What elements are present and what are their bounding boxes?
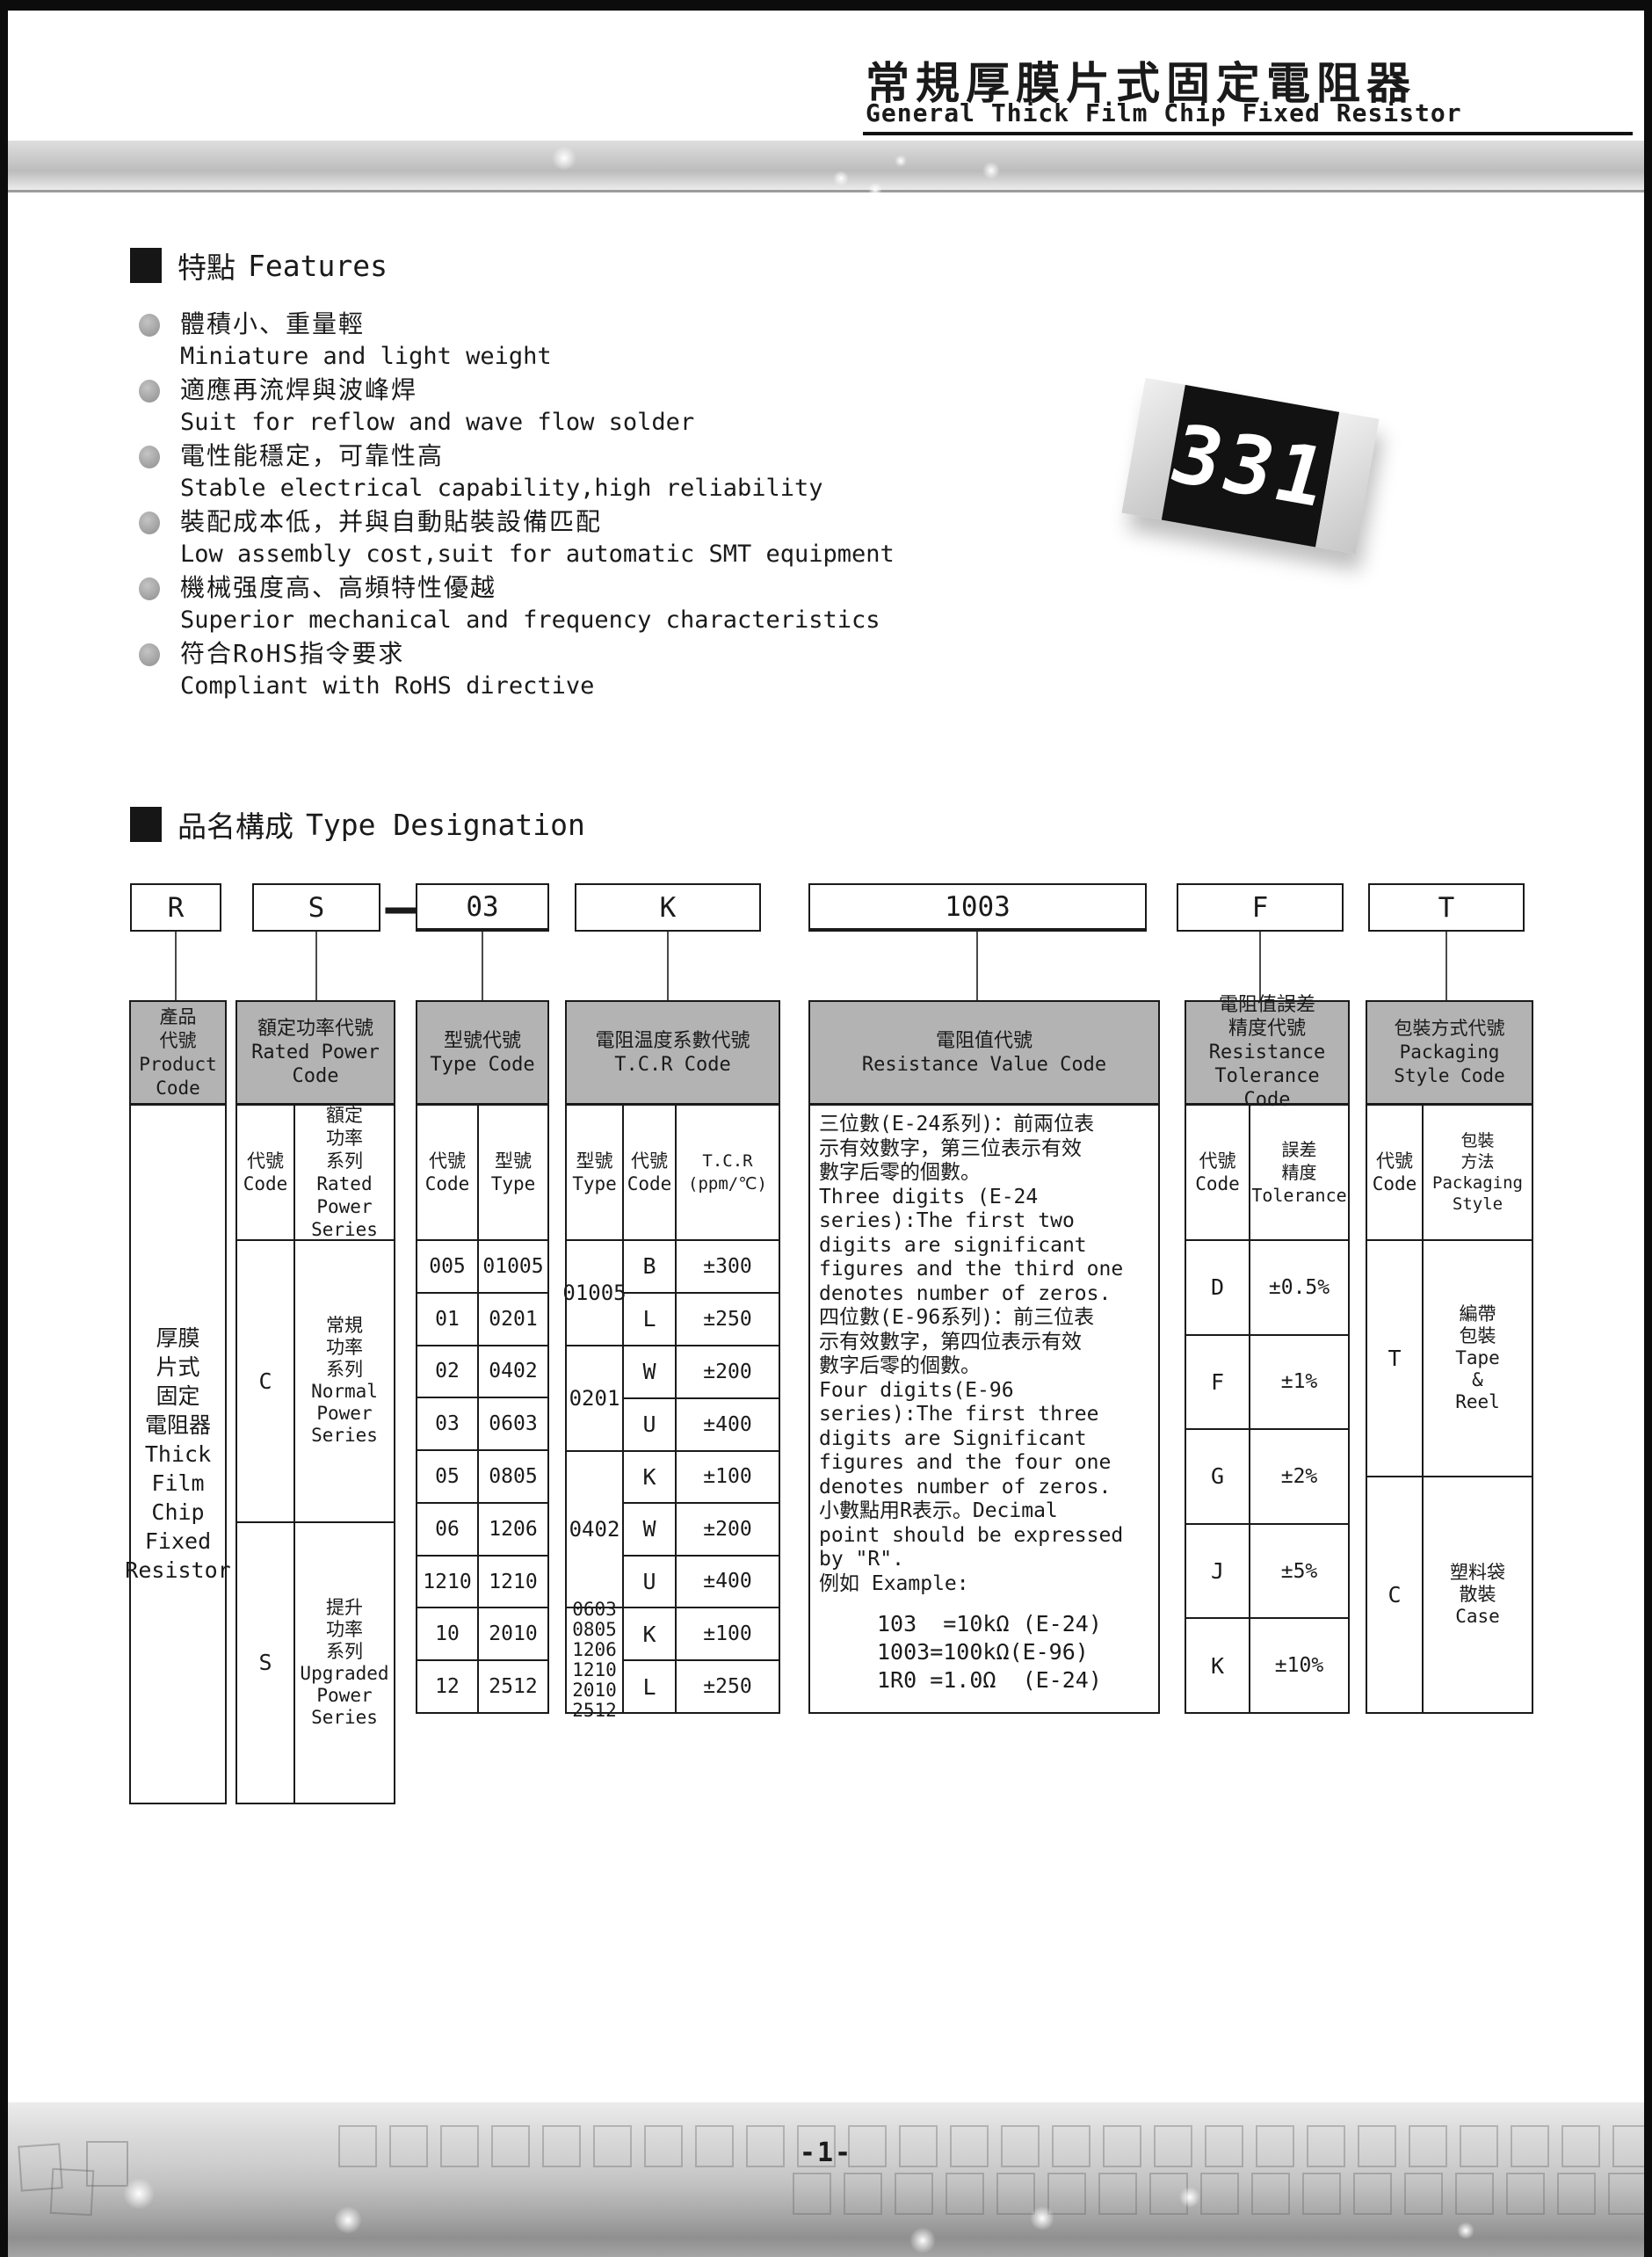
sparkle-dot [1179,2187,1200,2208]
feature-item: 符合RoHS指令要求 Compliant with RoHS directive [130,637,1097,703]
subheader-tcr: T.C.R (ppm/℃) [677,1106,779,1239]
bullet-icon [139,314,160,337]
sparkle-dot [868,183,882,197]
packaging-rows: T 編帶 包裝 Tape & Reel C 塑料袋 散裝 Case [1367,1241,1532,1712]
tcr-code: L [624,1294,677,1345]
tcr-value: ±100 [677,1608,779,1659]
connector-line [482,932,483,1000]
type-code: 12 [417,1661,479,1712]
column-product-code: 產品 代號 Product Code 厚膜 片式 固定 電阻器 Thick Fi… [129,1000,227,1804]
tcr-code: K [624,1608,677,1659]
column-header: 電阻值誤差 精度代號 Resistance Tolerance Code [1186,1002,1348,1106]
tcr-value: ±200 [677,1504,779,1555]
tcr-type: 0201 [567,1346,624,1450]
packaging-code: C [1367,1477,1424,1712]
feature-text-en: Miniature and light weight [180,340,1097,374]
page-edge-right [1644,0,1652,2257]
bullet-icon [139,446,160,468]
column-tolerance-code: 電阻值誤差 精度代號 Resistance Tolerance Code 代號 … [1185,1000,1350,1714]
resistance-value-examples: 103 =10kΩ (E-24) 1003=100kΩ(E-96) 1R0 =1… [877,1610,1155,1695]
product-description: 厚膜 片式 固定 電阻器 Thick Film Chip Fixed Resis… [131,1106,225,1803]
table-row: K ±100 [624,1452,779,1503]
resistance-value-body: 三位數(E-24系列)：前兩位表 示有效數字，第三位表示有效 數字后零的個數。 … [810,1106,1158,1712]
designation-heading-en: Type Designation [306,808,585,842]
table-row: 10 2010 [417,1607,547,1659]
feature-text-zh: 體積小、重量輕 [180,308,1097,340]
subheader-style: 包裝 方法 Packaging Style [1424,1106,1532,1239]
subheader-row: 型號 Type 代號 Code T.C.R (ppm/℃) [567,1106,779,1241]
column-header: 包裝方式代號 Packaging Style Code [1367,1002,1532,1106]
power-code: C [237,1241,295,1521]
feature-item: 體積小、重量輕 Miniature and light weight [130,308,1097,374]
decorative-film-strip [793,2173,1652,2215]
sparkle-dot [123,2178,155,2210]
feature-item: 機械强度高、高頻特性優越 Superior mechanical and fre… [130,571,1097,637]
page-edge-left [0,0,8,2257]
subheader-type: 型號 Type [567,1106,624,1239]
tcr-code: U [624,1399,677,1450]
type-code: 06 [417,1504,479,1555]
table-row: D ±0.5% [1186,1241,1348,1334]
tolerance-value: ±5% [1250,1525,1348,1618]
table-row: 03 0603 [417,1397,547,1449]
sparkle-dot [552,146,576,171]
feature-text-zh: 裝配成本低，并與自動貼裝設備匹配 [180,505,1097,538]
code-box-power: S [252,883,380,932]
table-row: F ±1% [1186,1334,1348,1429]
top-gradient-band [0,141,1652,192]
sparkle-dot [895,155,907,167]
connector-line [315,932,317,1000]
table-row: W ±200 [624,1346,779,1397]
tolerance-code: K [1186,1619,1250,1712]
code-box-product: R [130,883,221,932]
tcr-value: ±400 [677,1399,779,1450]
tcr-group: 01005 B ±300 L ±250 [567,1241,779,1345]
tcr-code: L [624,1661,677,1712]
sparkle-dot [1030,2206,1054,2231]
chip-resistor-image: 331 [1121,378,1377,554]
tolerance-value: ±10% [1250,1619,1348,1712]
section-square-icon [130,248,162,283]
type-designation-heading: 品名構成 Type Designation [130,803,585,845]
table-row: T 編帶 包裝 Tape & Reel [1367,1241,1532,1476]
chip-marking: 331 [1161,407,1341,525]
table-row: W ±200 [624,1502,779,1555]
column-tcr-code: 電阻温度系數代號 T.C.R Code 型號 Type 代號 Code T.C.… [565,1000,780,1714]
type-code: 03 [417,1398,479,1449]
tcr-value: ±300 [677,1241,779,1292]
title-underline [863,132,1633,135]
bullet-icon [139,512,160,534]
sparkle-dot [334,2206,362,2234]
subheader-type: 型號 Type [479,1106,547,1239]
tolerance-value: ±0.5% [1250,1241,1348,1334]
section-square-icon [130,807,162,842]
tolerance-code: F [1186,1336,1250,1429]
code-separator-dash: — [383,881,418,933]
feature-item: 裝配成本低，并與自動貼裝設備匹配 Low assembly cost,suit … [130,505,1097,571]
type-code: 005 [417,1241,479,1292]
subheader-code: 代號 Code [417,1106,479,1239]
column-rated-power-code: 額定功率代號 Rated Power Code 代號 Code 額定 功率 系列… [235,1000,395,1804]
table-row: 01 0201 [417,1292,547,1345]
power-series: 提升 功率 系列 Upgraded Power Series [295,1523,394,1803]
code-box-type: 03 [416,883,549,932]
type-size: 2512 [479,1661,547,1712]
tcr-code: B [624,1241,677,1292]
bullet-icon [139,643,160,666]
table-row: U ±400 [624,1555,779,1607]
connector-line [976,932,978,1000]
feature-text-zh: 電性能穩定，可靠性高 [180,439,1097,472]
page-number: -1- [0,2137,1652,2168]
subheader-row: 代號 Code 型號 Type [417,1106,547,1241]
tcr-type: 0603 0805 1206 1210 2010 2512 [567,1608,624,1712]
table-row: L ±250 [624,1292,779,1345]
bullet-icon [139,577,160,600]
feature-text-en: Superior mechanical and frequency charac… [180,604,1097,637]
type-size: 0402 [479,1346,547,1397]
table-row: C 塑料袋 散裝 Case [1367,1476,1532,1712]
column-packaging-code: 包裝方式代號 Packaging Style Code 代號 Code 包裝 方… [1366,1000,1533,1714]
tcr-groups: 01005 B ±300 L ±250 0201 W [567,1241,779,1712]
subheader-series: 額定 功率 系列 Rated Power Series [295,1106,394,1239]
feature-text-zh: 符合RoHS指令要求 [180,637,1097,670]
type-code: 05 [417,1451,479,1502]
type-code: 1210 [417,1557,479,1607]
sparkle-dot [909,2227,936,2253]
page-title-en: General Thick Film Chip Fixed Resistor [866,98,1462,127]
tcr-type: 0402 [567,1452,624,1607]
bullet-icon [139,380,160,403]
tcr-value: ±250 [677,1661,779,1712]
table-row: U ±400 [624,1397,779,1450]
tolerance-code: D [1186,1241,1250,1334]
feature-text-en: Compliant with RoHS directive [180,670,1097,703]
tolerance-value: ±2% [1250,1430,1348,1523]
sparkle-dot [1457,2222,1474,2239]
table-row: 05 0805 [417,1449,547,1502]
tcr-code: W [624,1504,677,1555]
chip-body: 331 [1162,385,1340,548]
connector-line [667,932,669,1000]
subheader-code: 代號 Code [1367,1106,1424,1239]
tcr-group: 0402 K ±100 W ±200 U ±400 [567,1450,779,1607]
type-size: 1206 [479,1504,547,1555]
connector-line [1445,932,1447,1000]
table-row: 02 0402 [417,1345,547,1397]
table-row: 1210 1210 [417,1555,547,1607]
code-box-tcr: K [575,883,761,932]
sparkle-dot [982,162,1000,179]
table-row: S 提升 功率 系列 Upgraded Power Series [237,1521,394,1803]
type-size: 2010 [479,1608,547,1659]
tolerance-value: ±1% [1250,1336,1348,1429]
feature-text-zh: 適應再流焊與波峰焊 [180,374,1097,406]
packaging-style: 塑料袋 散裝 Case [1424,1477,1532,1712]
table-row: L ±250 [624,1659,779,1712]
type-size: 1210 [479,1557,547,1607]
table-row: C 常規 功率 系列 Normal Power Series [237,1241,394,1521]
type-code: 10 [417,1608,479,1659]
tcr-type: 01005 [567,1241,624,1345]
feature-item: 適應再流焊與波峰焊 Suit for reflow and wave flow … [130,374,1097,439]
feature-item: 電性能穩定，可靠性高 Stable electrical capability,… [130,439,1097,505]
type-size: 0201 [479,1294,547,1345]
tcr-code: U [624,1557,677,1607]
column-header: 額定功率代號 Rated Power Code [237,1002,394,1106]
sparkle-dot [833,171,849,186]
code-box-packaging: T [1368,883,1525,932]
features-heading-zh: 特點 [178,244,235,287]
tcr-value: ±400 [677,1557,779,1607]
tcr-code: K [624,1452,677,1503]
subheader-row: 代號 Code 誤差 精度 Tolerance [1186,1106,1348,1241]
tcr-value: ±250 [677,1294,779,1345]
power-code: S [237,1523,295,1803]
resistance-value-description: 三位數(E-24系列)：前兩位表 示有效數字，第三位表示有效 數字后零的個數。 … [819,1113,1155,1596]
table-row: K ±10% [1186,1617,1348,1712]
type-size: 01005 [479,1241,547,1292]
table-row: 005 01005 [417,1241,547,1292]
table-row: J ±5% [1186,1523,1348,1618]
power-rows: C 常規 功率 系列 Normal Power Series S 提升 功率 系… [237,1241,394,1803]
table-row: B ±300 [624,1241,779,1292]
column-header: 電阻值代號 Resistance Value Code [810,1002,1158,1106]
feature-text-en: Stable electrical capability,high reliab… [180,472,1097,505]
feature-text-zh: 機械强度高、高頻特性優越 [180,571,1097,604]
type-rows: 005 01005 01 0201 02 0402 03 0603 05 080… [417,1241,547,1712]
subheader-row: 代號 Code 額定 功率 系列 Rated Power Series [237,1106,394,1241]
type-code: 01 [417,1294,479,1345]
tcr-group: 0201 W ±200 U ±400 [567,1345,779,1450]
subheader-code: 代號 Code [1186,1106,1250,1239]
datasheet-page: 常規厚膜片式固定電阻器 General Thick Film Chip Fixe… [0,0,1652,2257]
column-resistance-value-code: 電阻值代號 Resistance Value Code 三位數(E-24系列)：… [808,1000,1160,1714]
packaging-style: 編帶 包裝 Tape & Reel [1424,1241,1532,1476]
tolerance-rows: D ±0.5% F ±1% G ±2% J ±5% K ±10% [1186,1241,1348,1712]
column-type-code: 型號代號 Type Code 代號 Code 型號 Type 005 01005… [416,1000,549,1714]
type-code: 02 [417,1346,479,1397]
tcr-code: W [624,1346,677,1397]
type-size: 0805 [479,1451,547,1502]
code-box-tolerance: F [1177,883,1344,932]
connector-line [175,932,177,1000]
table-row: 06 1206 [417,1502,547,1555]
subheader-code: 代號 Code [237,1106,295,1239]
table-row: 12 2512 [417,1659,547,1712]
table-row: K ±100 [624,1608,779,1659]
column-header: 型號代號 Type Code [417,1002,547,1106]
designation-heading-zh: 品名構成 [178,803,293,845]
code-box-value: 1003 [808,883,1147,932]
subheader-row: 代號 Code 包裝 方法 Packaging Style [1367,1106,1532,1241]
subheader-tolerance: 誤差 精度 Tolerance [1250,1106,1348,1239]
connector-line [1259,932,1261,1000]
feature-text-en: Suit for reflow and wave flow solder [180,406,1097,439]
column-header: 產品 代號 Product Code [131,1002,225,1106]
features-heading-en: Features [248,249,388,283]
packaging-code: T [1367,1241,1424,1476]
tolerance-code: G [1186,1430,1250,1523]
tcr-value: ±100 [677,1452,779,1503]
page-edge-top [0,0,1652,11]
table-row: G ±2% [1186,1428,1348,1523]
tcr-group: 0603 0805 1206 1210 2010 2512 K ±100 L ±… [567,1607,779,1712]
feature-text-en: Low assembly cost,suit for automatic SMT… [180,538,1097,571]
subheader-code: 代號 Code [624,1106,677,1239]
tolerance-code: J [1186,1525,1250,1618]
features-heading: 特點 Features [130,244,388,287]
tcr-value: ±200 [677,1346,779,1397]
type-size: 0603 [479,1398,547,1449]
power-series: 常規 功率 系列 Normal Power Series [295,1241,394,1521]
column-header: 電阻温度系數代號 T.C.R Code [567,1002,779,1106]
